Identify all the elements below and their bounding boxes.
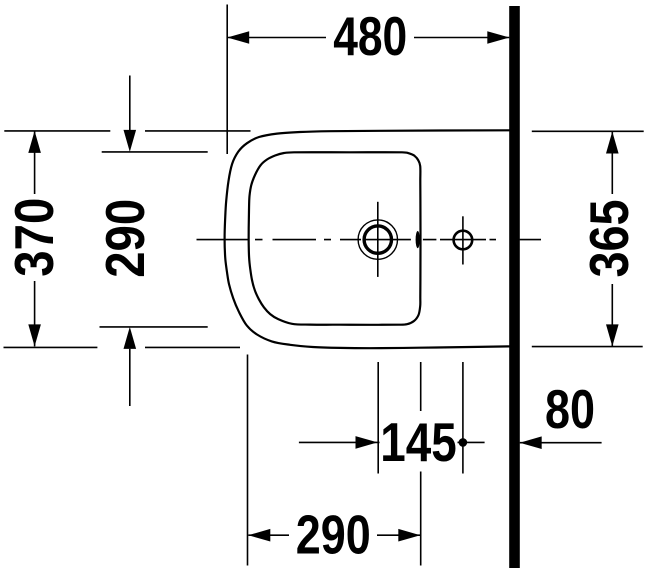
svg-text:145: 145	[380, 411, 457, 473]
svg-text:365: 365	[578, 200, 640, 278]
svg-text:290: 290	[94, 199, 156, 278]
svg-text:290: 290	[296, 504, 371, 566]
svg-text:370: 370	[3, 198, 65, 277]
svg-text:80: 80	[545, 378, 595, 440]
svg-text:480: 480	[333, 5, 407, 67]
